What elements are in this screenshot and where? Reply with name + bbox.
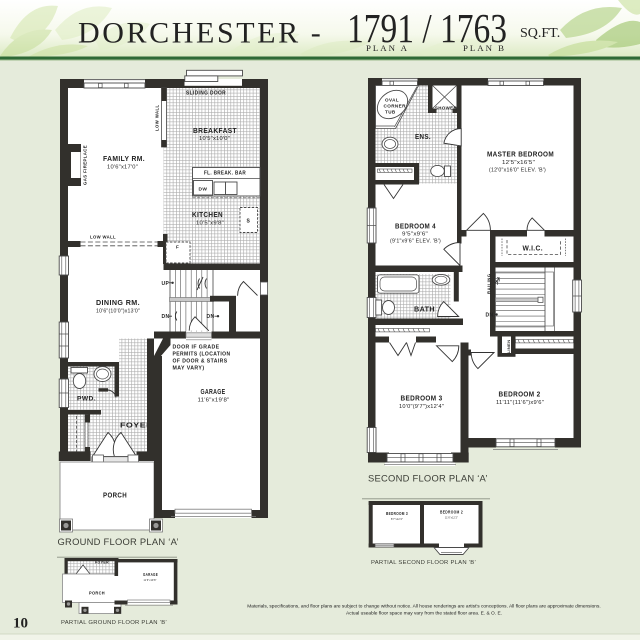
svg-text:9'5"x9'6": 9'5"x9'6" (402, 232, 428, 238)
svg-text:CORNER: CORNER (384, 104, 407, 109)
svg-text:BEDROOM 2: BEDROOM 2 (499, 390, 541, 399)
svg-text:PORCH: PORCH (89, 591, 105, 596)
svg-text:10'5"x9'8": 10'5"x9'8" (196, 221, 224, 227)
svg-text:S: S (247, 219, 251, 225)
svg-text:12'5"x16'5": 12'5"x16'5" (502, 160, 535, 166)
svg-text:FL. BREAK. BAR: FL. BREAK. BAR (204, 171, 246, 177)
svg-text:RAILING: RAILING (487, 273, 492, 294)
svg-text:PORCH: PORCH (103, 493, 127, 500)
svg-text:11'11"(11'6")x9'6": 11'11"(11'6")x9'6" (496, 400, 544, 406)
svg-text:PARTIAL GROUND FLOOR PLAN ‘B’: PARTIAL GROUND FLOOR PLAN ‘B’ (61, 620, 167, 626)
svg-text:DN: DN (207, 314, 215, 320)
svg-text:F: F (176, 245, 179, 250)
svg-text:GARAGE: GARAGE (143, 572, 158, 577)
svg-text:GAS FIREPLACE: GAS FIREPLACE (83, 145, 88, 185)
svg-text:PLAN B: PLAN B (463, 43, 506, 53)
svg-text:10'6"x17'0": 10'6"x17'0" (107, 165, 138, 171)
svg-text:LOW WALL: LOW WALL (155, 104, 160, 131)
svg-text:DOOR IF GRADE: DOOR IF GRADE (173, 345, 220, 351)
svg-text:BEDROOM 3: BEDROOM 3 (401, 394, 443, 403)
svg-text:OVAL: OVAL (385, 98, 399, 103)
svg-text:UP: UP (162, 281, 170, 287)
svg-text:DINING RM.: DINING RM. (96, 298, 140, 307)
svg-text:W.I.C.: W.I.C. (523, 244, 544, 253)
svg-text:BEDROOM 2: BEDROOM 2 (440, 510, 463, 515)
svg-text:TUB: TUB (385, 110, 396, 115)
svg-text:BEDROOM 4: BEDROOM 4 (395, 222, 436, 231)
svg-text:MASTER BEDROOM: MASTER BEDROOM (487, 150, 554, 159)
svg-text:8'7"x12'4": 8'7"x12'4" (391, 517, 403, 521)
svg-text:BREAKFAST: BREAKFAST (193, 126, 237, 135)
svg-text:BEDROOM 3: BEDROOM 3 (386, 511, 408, 516)
svg-text:PARTIAL SECOND FLOOR PLAN ‘B’: PARTIAL SECOND FLOOR PLAN ‘B’ (371, 560, 476, 566)
svg-text:DN: DN (486, 313, 494, 319)
svg-text:OF DOOR & STAIRS: OF DOOR & STAIRS (173, 359, 228, 365)
svg-text:SECOND FLOOR PLAN ‘A’: SECOND FLOOR PLAN ‘A’ (368, 473, 488, 484)
svg-text:FAMILY RM.: FAMILY RM. (103, 154, 145, 163)
svg-text:10'5"x10'0": 10'5"x10'0" (199, 136, 230, 142)
svg-text:(12'0"x16'0" ELEV. 'B'): (12'0"x16'0" ELEV. 'B') (489, 168, 546, 174)
svg-text:DW: DW (199, 187, 208, 193)
svg-text:PLAN A: PLAN A (366, 43, 409, 53)
svg-text:SLIDING DOOR: SLIDING DOOR (186, 91, 226, 97)
svg-text:11'6"x19'8": 11'6"x19'8" (198, 398, 230, 404)
svg-text:11'6"x12'2": 11'6"x12'2" (445, 516, 458, 520)
svg-text:LINEN: LINEN (506, 340, 511, 354)
svg-text:SQ.FT.: SQ.FT. (520, 26, 560, 41)
svg-text:LOW WALL: LOW WALL (90, 235, 116, 241)
svg-text:DN: DN (162, 314, 170, 320)
svg-text:GROUND FLOOR PLAN ‘A’: GROUND FLOOR PLAN ‘A’ (58, 536, 179, 547)
svg-text:(9'1"x9'6" ELEV. 'B'): (9'1"x9'6" ELEV. 'B') (390, 239, 441, 245)
svg-text:PERMITS (LOCATION: PERMITS (LOCATION (173, 352, 231, 358)
svg-text:DORCHESTER -: DORCHESTER - (78, 17, 323, 50)
svg-text:KITCHEN: KITCHEN (192, 210, 223, 219)
svg-text:PWD.: PWD. (77, 396, 96, 403)
svg-text:FOYER: FOYER (95, 561, 109, 565)
svg-text:10'0"(9'7")x12'4": 10'0"(9'7")x12'4" (399, 404, 444, 410)
svg-text:MAY VARY): MAY VARY) (173, 366, 205, 372)
svg-text:GARAGE: GARAGE (201, 387, 226, 396)
svg-text:ENS.: ENS. (415, 132, 431, 141)
svg-text:10'6"(10'0")x13'0": 10'6"(10'0")x13'0" (96, 309, 140, 315)
svg-text:BATH: BATH (414, 305, 435, 314)
svg-text:SHOWER: SHOWER (435, 106, 457, 112)
svg-text:Materials, specifications, and: Materials, specifications, and floor pla… (247, 604, 600, 610)
svg-text:10: 10 (13, 616, 28, 632)
svg-text:11'6"x19'8": 11'6"x19'8" (144, 578, 157, 582)
svg-text:Actual useable floor space may: Actual useable floor space may vary from… (346, 611, 502, 617)
